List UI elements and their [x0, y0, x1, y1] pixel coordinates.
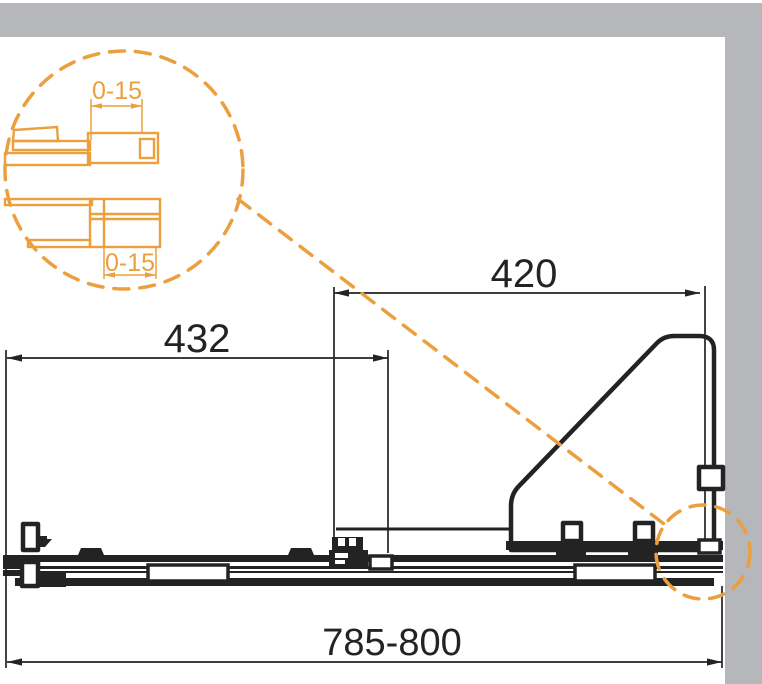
total-width-dimension-label: 785-800 — [322, 622, 461, 664]
panel-foot-2 — [635, 523, 653, 541]
bracket-notch-2 — [349, 538, 356, 546]
panel-bottom-bar — [506, 541, 723, 550]
sliding-panel-dimension-label: 432 — [164, 317, 231, 361]
technical-drawing-canvas: 0-15 0-15 — [0, 0, 762, 684]
panel-bottom-tab-1 — [556, 550, 586, 555]
detail-bottom-adjustment-label: 0-15 — [105, 249, 155, 277]
rail-foot-left — [78, 548, 104, 555]
left-end-step — [38, 571, 66, 587]
bracket-cap — [332, 537, 363, 550]
bracket-side-block — [370, 556, 392, 569]
rail-glide-block-right — [575, 565, 655, 581]
panel-foot-1 — [563, 523, 581, 541]
wall-bracket-square — [699, 467, 723, 489]
fixed-panel-dimension-label: 420 — [491, 252, 558, 296]
rail-glide-block-left — [148, 565, 228, 581]
wall-top-band — [0, 3, 762, 37]
wall-right-column — [725, 3, 762, 684]
rail-end-cap — [699, 540, 720, 553]
bracket-slot-2 — [335, 560, 345, 564]
bracket-notch-1 — [338, 538, 345, 546]
left-end-knob — [23, 524, 38, 550]
detail-top-adjustment-label: 0-15 — [92, 77, 142, 105]
rail-foot-mid — [288, 548, 314, 555]
left-end-lower-profile — [22, 562, 38, 586]
diagram-svg: 0-15 0-15 — [0, 0, 762, 684]
bracket-body — [329, 550, 368, 566]
bracket-slot-1 — [335, 553, 348, 558]
panel-bottom-tab-2 — [628, 550, 658, 555]
